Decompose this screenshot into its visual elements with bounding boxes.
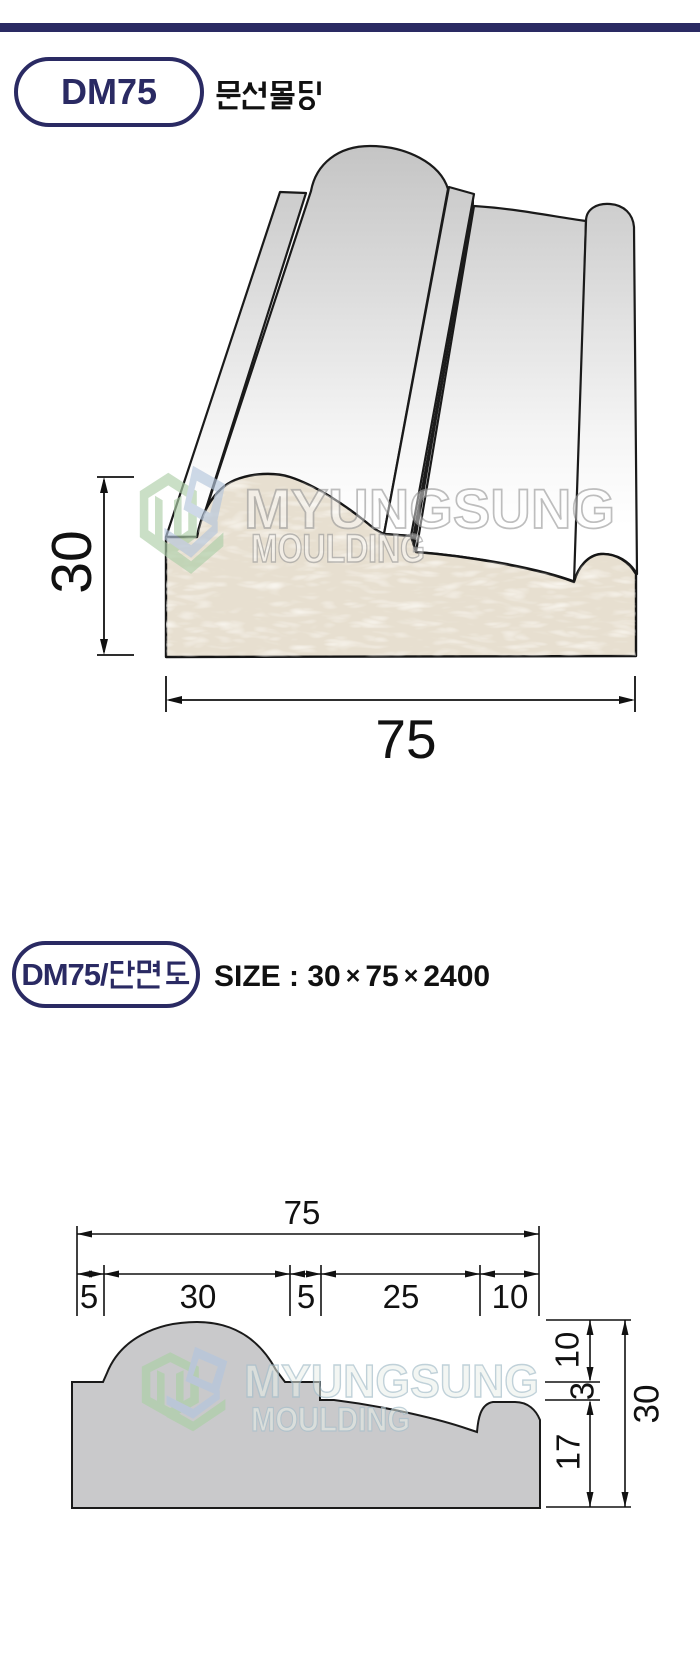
svg-text:75: 75	[284, 1194, 321, 1231]
svg-text:MOULDING: MOULDING	[251, 527, 425, 571]
svg-text:MYUNGSUNG: MYUNGSUNG	[244, 1355, 539, 1407]
svg-text:25: 25	[383, 1278, 420, 1315]
svg-text:10: 10	[549, 1332, 586, 1369]
svg-text:5: 5	[80, 1278, 98, 1315]
svg-text:MOULDING: MOULDING	[251, 1401, 410, 1439]
svg-text:30: 30	[40, 530, 104, 593]
svg-text:5: 5	[297, 1278, 315, 1315]
svg-text:75: 75	[375, 708, 436, 770]
svg-text:17: 17	[550, 1434, 587, 1471]
svg-text:3: 3	[564, 1382, 601, 1400]
svg-text:30: 30	[627, 1385, 666, 1424]
svg-text:10: 10	[492, 1278, 529, 1315]
svg-text:30: 30	[180, 1278, 217, 1315]
